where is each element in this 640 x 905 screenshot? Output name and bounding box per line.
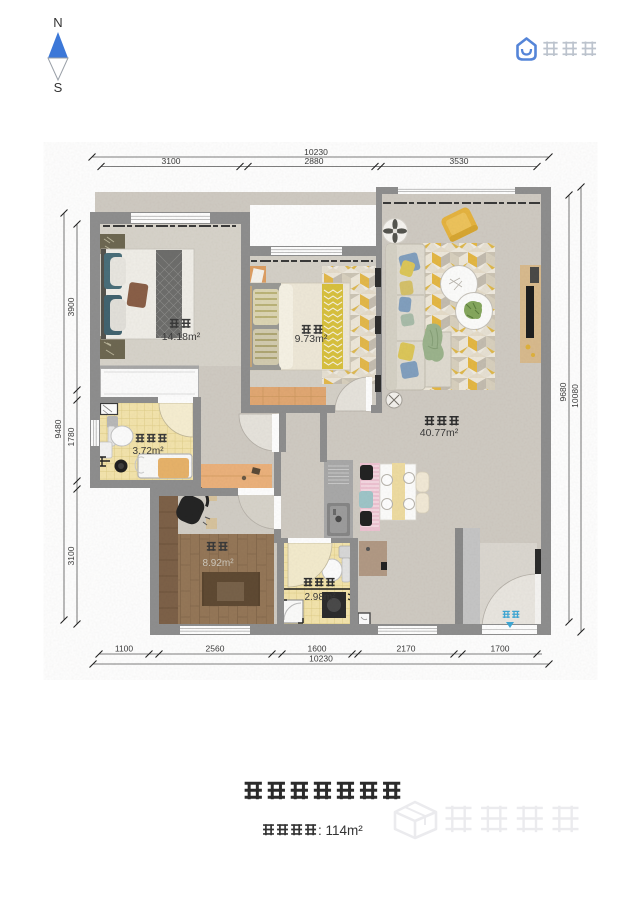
svg-text:1700: 1700 xyxy=(491,644,510,654)
svg-text:10080: 10080 xyxy=(570,384,580,408)
svg-text:10230: 10230 xyxy=(309,654,333,664)
svg-text:1780: 1780 xyxy=(66,427,76,446)
svg-text:1100: 1100 xyxy=(115,644,134,654)
svg-text:9680: 9680 xyxy=(558,382,568,401)
svg-text:3900: 3900 xyxy=(66,297,76,316)
svg-text:2560: 2560 xyxy=(206,644,225,654)
svg-text:9480: 9480 xyxy=(53,419,63,438)
svg-text:3100: 3100 xyxy=(162,156,181,166)
svg-text:2170: 2170 xyxy=(397,644,416,654)
svg-text:N: N xyxy=(53,15,62,30)
svg-text:: 114m²: : 114m² xyxy=(318,823,363,838)
svg-text:3530: 3530 xyxy=(450,156,469,166)
svg-text:S: S xyxy=(54,80,63,95)
svg-text:3100: 3100 xyxy=(66,546,76,565)
svg-text:1600: 1600 xyxy=(308,644,327,654)
svg-text:2880: 2880 xyxy=(305,156,324,166)
